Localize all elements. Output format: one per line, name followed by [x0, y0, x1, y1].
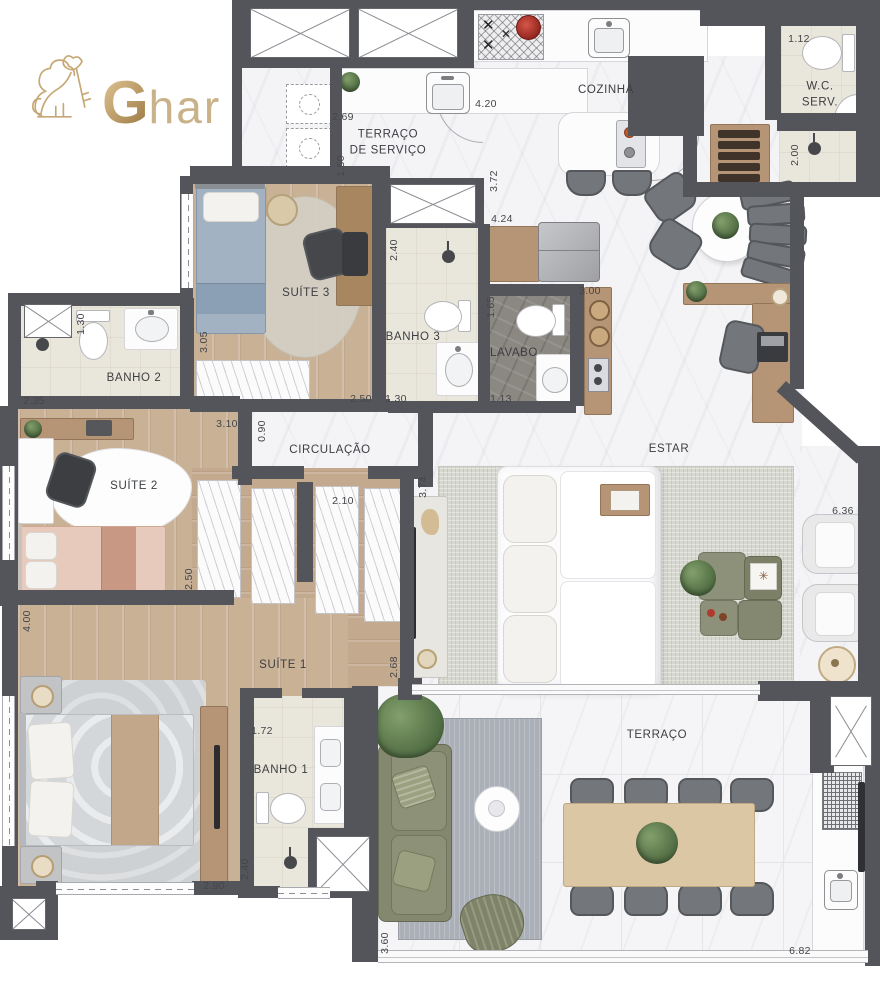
window: [2, 696, 15, 846]
bed-suite2: [18, 526, 166, 594]
wall: [238, 886, 280, 898]
toilet-banho1: [270, 793, 306, 824]
shower-head-banho2: [36, 338, 49, 351]
bbq-dark-panel: [858, 782, 865, 872]
wall: [856, 8, 880, 190]
coffee-table: [700, 600, 738, 636]
wall: [8, 293, 21, 406]
side-table-estar: [818, 646, 856, 684]
wall: [483, 284, 573, 296]
dimension-label: 6.82: [789, 945, 811, 957]
dimension-label: 6.36: [832, 505, 854, 517]
dimension-label: 2.00: [789, 144, 801, 166]
logo-text: har: [149, 89, 221, 127]
dimension-label: 3.05: [198, 331, 210, 353]
shaft-x-icon: [358, 8, 458, 58]
dimension-label: 3.72: [488, 170, 500, 192]
shaft-x-icon: [316, 836, 370, 892]
wardrobe: [251, 488, 295, 604]
dimension-label: 2.40: [388, 239, 400, 261]
room-label-suite1: SUÍTE 1: [259, 658, 307, 674]
armchair: [802, 584, 860, 642]
bbq-sink: [824, 870, 858, 910]
island-stool: [566, 170, 606, 196]
dimension-label: 4.00: [21, 610, 33, 632]
dimension-label: 3.60: [379, 932, 391, 954]
wall: [700, 0, 880, 26]
vanity-banho2: [124, 308, 178, 350]
room-label-terraco: TERRAÇO: [627, 728, 687, 744]
dimension-label: 2.50: [350, 393, 372, 405]
dimension-label: 3.74: [417, 476, 429, 498]
wall: [790, 183, 804, 389]
wall: [182, 298, 194, 403]
kitchen-sink: [588, 18, 630, 58]
dimension-label: 3.00: [579, 285, 601, 297]
bed-suite1: [20, 714, 194, 846]
room-label-banho2: BANHO 2: [107, 371, 162, 387]
window: [56, 882, 194, 895]
dimension-label: 2.35: [23, 395, 45, 407]
dimension-label: 2.40: [239, 858, 251, 880]
dimension-label: 1.12: [788, 33, 810, 45]
dimension-label: 1.30: [385, 393, 407, 405]
vanity-banho1: [314, 726, 346, 824]
dimension-label: 2.69: [332, 111, 354, 123]
dimension-label: 1.65: [485, 296, 497, 318]
wall: [232, 66, 242, 182]
wall: [765, 16, 781, 120]
wall: [388, 401, 576, 413]
plant-laundry: [340, 72, 360, 92]
room-label-wc-serv: W.C. SERV.: [802, 79, 838, 110]
wall: [254, 688, 282, 698]
dimension-label: 1.50: [335, 155, 347, 177]
wall: [777, 113, 880, 131]
wall: [858, 446, 880, 688]
armchair: [802, 514, 860, 574]
tv-panel-suite1: [200, 706, 228, 890]
floor-plan: G har ✕ ✕ ✕: [0, 0, 880, 1000]
laundry-tank-sink: [426, 72, 470, 114]
room-label-terraco-servico: TERRAÇO DE SERVIÇO: [350, 127, 427, 158]
shower-head-banho3: [442, 250, 455, 263]
centerpiece-plant: [636, 822, 678, 864]
shaft-x-icon: [830, 696, 872, 766]
wall: [297, 482, 313, 582]
fridge: [538, 222, 600, 282]
room-label-cozinha: COZINHA: [578, 83, 634, 99]
window: [2, 466, 15, 560]
coffee-table: ✳: [744, 556, 782, 600]
burner-icon: ✕: [482, 38, 495, 53]
laptop: [757, 332, 788, 362]
nightstand-suite1: [20, 676, 62, 714]
wall: [190, 166, 390, 184]
toilet-tank-banho1: [256, 792, 269, 824]
wardrobe: [364, 488, 404, 622]
nightstand-suite1: [20, 846, 62, 884]
room-label-suite3: SUÍTE 3: [282, 286, 330, 302]
dimension-label: 1.72: [251, 725, 273, 737]
plant-table: [712, 212, 739, 239]
dimension-label: 2.50: [183, 568, 195, 590]
bbq-grill: [822, 772, 862, 830]
washer-slot: [286, 84, 332, 124]
red-pot: [516, 15, 541, 40]
vanity-banho3: [436, 342, 480, 396]
monitor-suite3: [342, 232, 368, 276]
sink-lavabo: [536, 354, 572, 402]
dimension-label: 4.20: [475, 98, 497, 110]
room-label-lavabo: LAVABO: [490, 346, 538, 362]
dimension-label: 1.13: [490, 393, 512, 405]
wall: [473, 0, 706, 10]
side-table-suite3: [266, 194, 298, 226]
sideboard-wine: [710, 124, 770, 186]
dimension-label: 1.30: [75, 313, 87, 335]
logo-letter-g: G: [102, 79, 149, 127]
laptop-suite2: [86, 420, 112, 436]
shaft-x-icon: [12, 898, 46, 930]
terrace-chair: [624, 882, 668, 916]
shower-head-wcserv: [808, 142, 821, 155]
dimension-label: 3.10: [216, 418, 238, 430]
bed-suite3: [196, 186, 266, 334]
toilet-lavabo: [516, 305, 556, 337]
room-label-circulacao: CIRCULAÇÃO: [289, 443, 370, 459]
terrace-chair: [678, 882, 722, 916]
wall: [232, 466, 304, 479]
wall: [628, 56, 704, 136]
wall: [18, 590, 234, 605]
estar-terraco-door-frame: [412, 684, 760, 695]
dimension-label: 4.24: [491, 213, 513, 225]
window: [278, 887, 330, 899]
kitchen-tall-counter: [584, 287, 612, 415]
lion-with-key-icon: [24, 48, 100, 127]
ghar-logo: G har: [24, 48, 221, 127]
shaft-x-icon: [24, 304, 72, 338]
coffee-table: [738, 600, 782, 640]
kitchen-cabinet: [488, 226, 540, 282]
dimension-label: 2.10: [332, 495, 354, 507]
shaft-x-icon: [250, 8, 350, 58]
room-label-banho3: BANHO 3: [386, 330, 441, 346]
wall: [683, 182, 880, 197]
room-label-estar: ESTAR: [649, 442, 690, 458]
dimension-label: 0.90: [256, 420, 268, 442]
room-label-suite2: SUÍTE 2: [110, 479, 158, 495]
plant-desk: [686, 281, 707, 302]
shaft-x-icon: [390, 184, 476, 224]
terrace-chair: [570, 882, 614, 916]
toilet-banho3: [424, 301, 462, 332]
dryer-slot: [286, 128, 332, 168]
wall: [418, 407, 433, 487]
toilet-tank-wcserv: [842, 34, 855, 72]
wall: [368, 466, 418, 479]
dimension-label: 2.90: [203, 880, 225, 892]
coffee-table-terraco: [474, 786, 520, 832]
shower-head-banho1: [284, 856, 297, 869]
console-behind-sofa: [600, 484, 650, 516]
burner-icon: ✕: [501, 28, 511, 40]
room-label-banho1: BANHO 1: [254, 763, 309, 779]
terrace-chair: [730, 882, 774, 916]
wall: [400, 478, 414, 692]
plant-coffee-table: [680, 560, 716, 596]
wardrobe: [197, 480, 241, 598]
window: [181, 194, 194, 288]
dimension-label: 2.68: [388, 656, 400, 678]
desk-bowl: [771, 288, 789, 306]
sofa-terraco: [378, 744, 452, 922]
burner-icon: ✕: [482, 18, 495, 33]
plant-suite2: [24, 420, 42, 438]
wall: [352, 686, 378, 962]
wall: [570, 284, 584, 406]
